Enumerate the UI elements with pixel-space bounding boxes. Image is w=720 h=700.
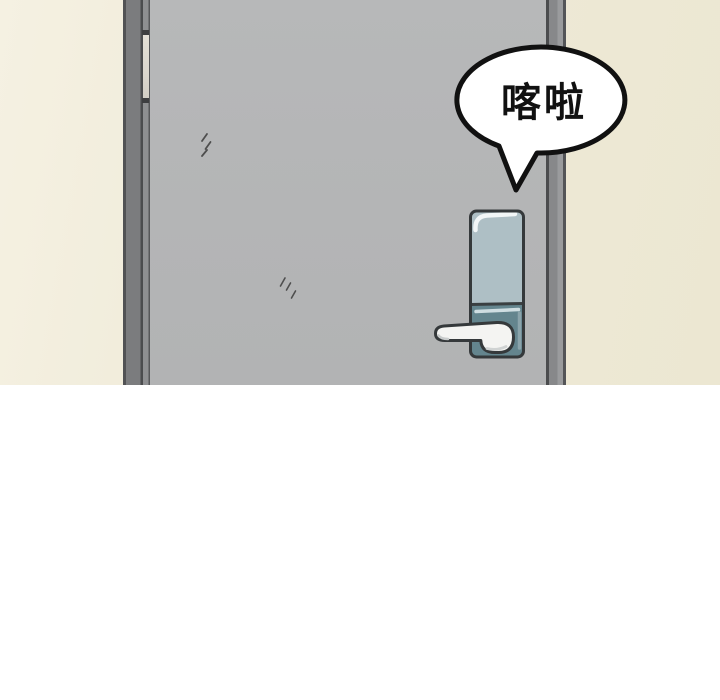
door-artwork-layer <box>0 0 720 385</box>
page-blank-area <box>0 385 720 700</box>
lock-plate-divider <box>471 304 524 305</box>
comic-page: 喀啦 <box>0 0 720 700</box>
lock-lower-highlight <box>476 310 519 312</box>
scratch-marks-upper <box>202 134 211 156</box>
comic-panel[interactable]: 喀啦 <box>0 0 720 385</box>
scratch-marks-lower <box>281 278 296 298</box>
sfx-text: 喀啦 <box>487 81 601 125</box>
